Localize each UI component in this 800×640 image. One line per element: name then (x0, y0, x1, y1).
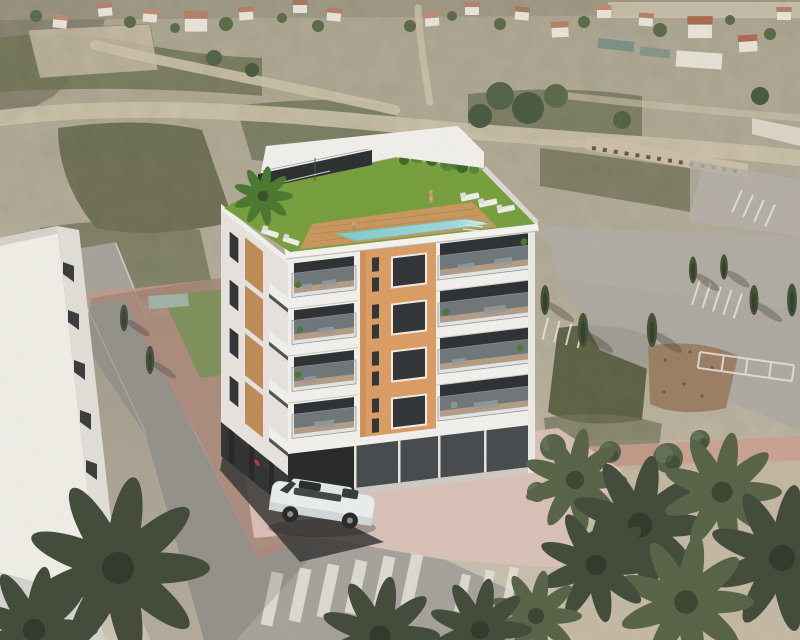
photo-grain (0, 0, 800, 640)
scene-canvas (0, 0, 800, 640)
aerial-render-image (0, 0, 800, 640)
